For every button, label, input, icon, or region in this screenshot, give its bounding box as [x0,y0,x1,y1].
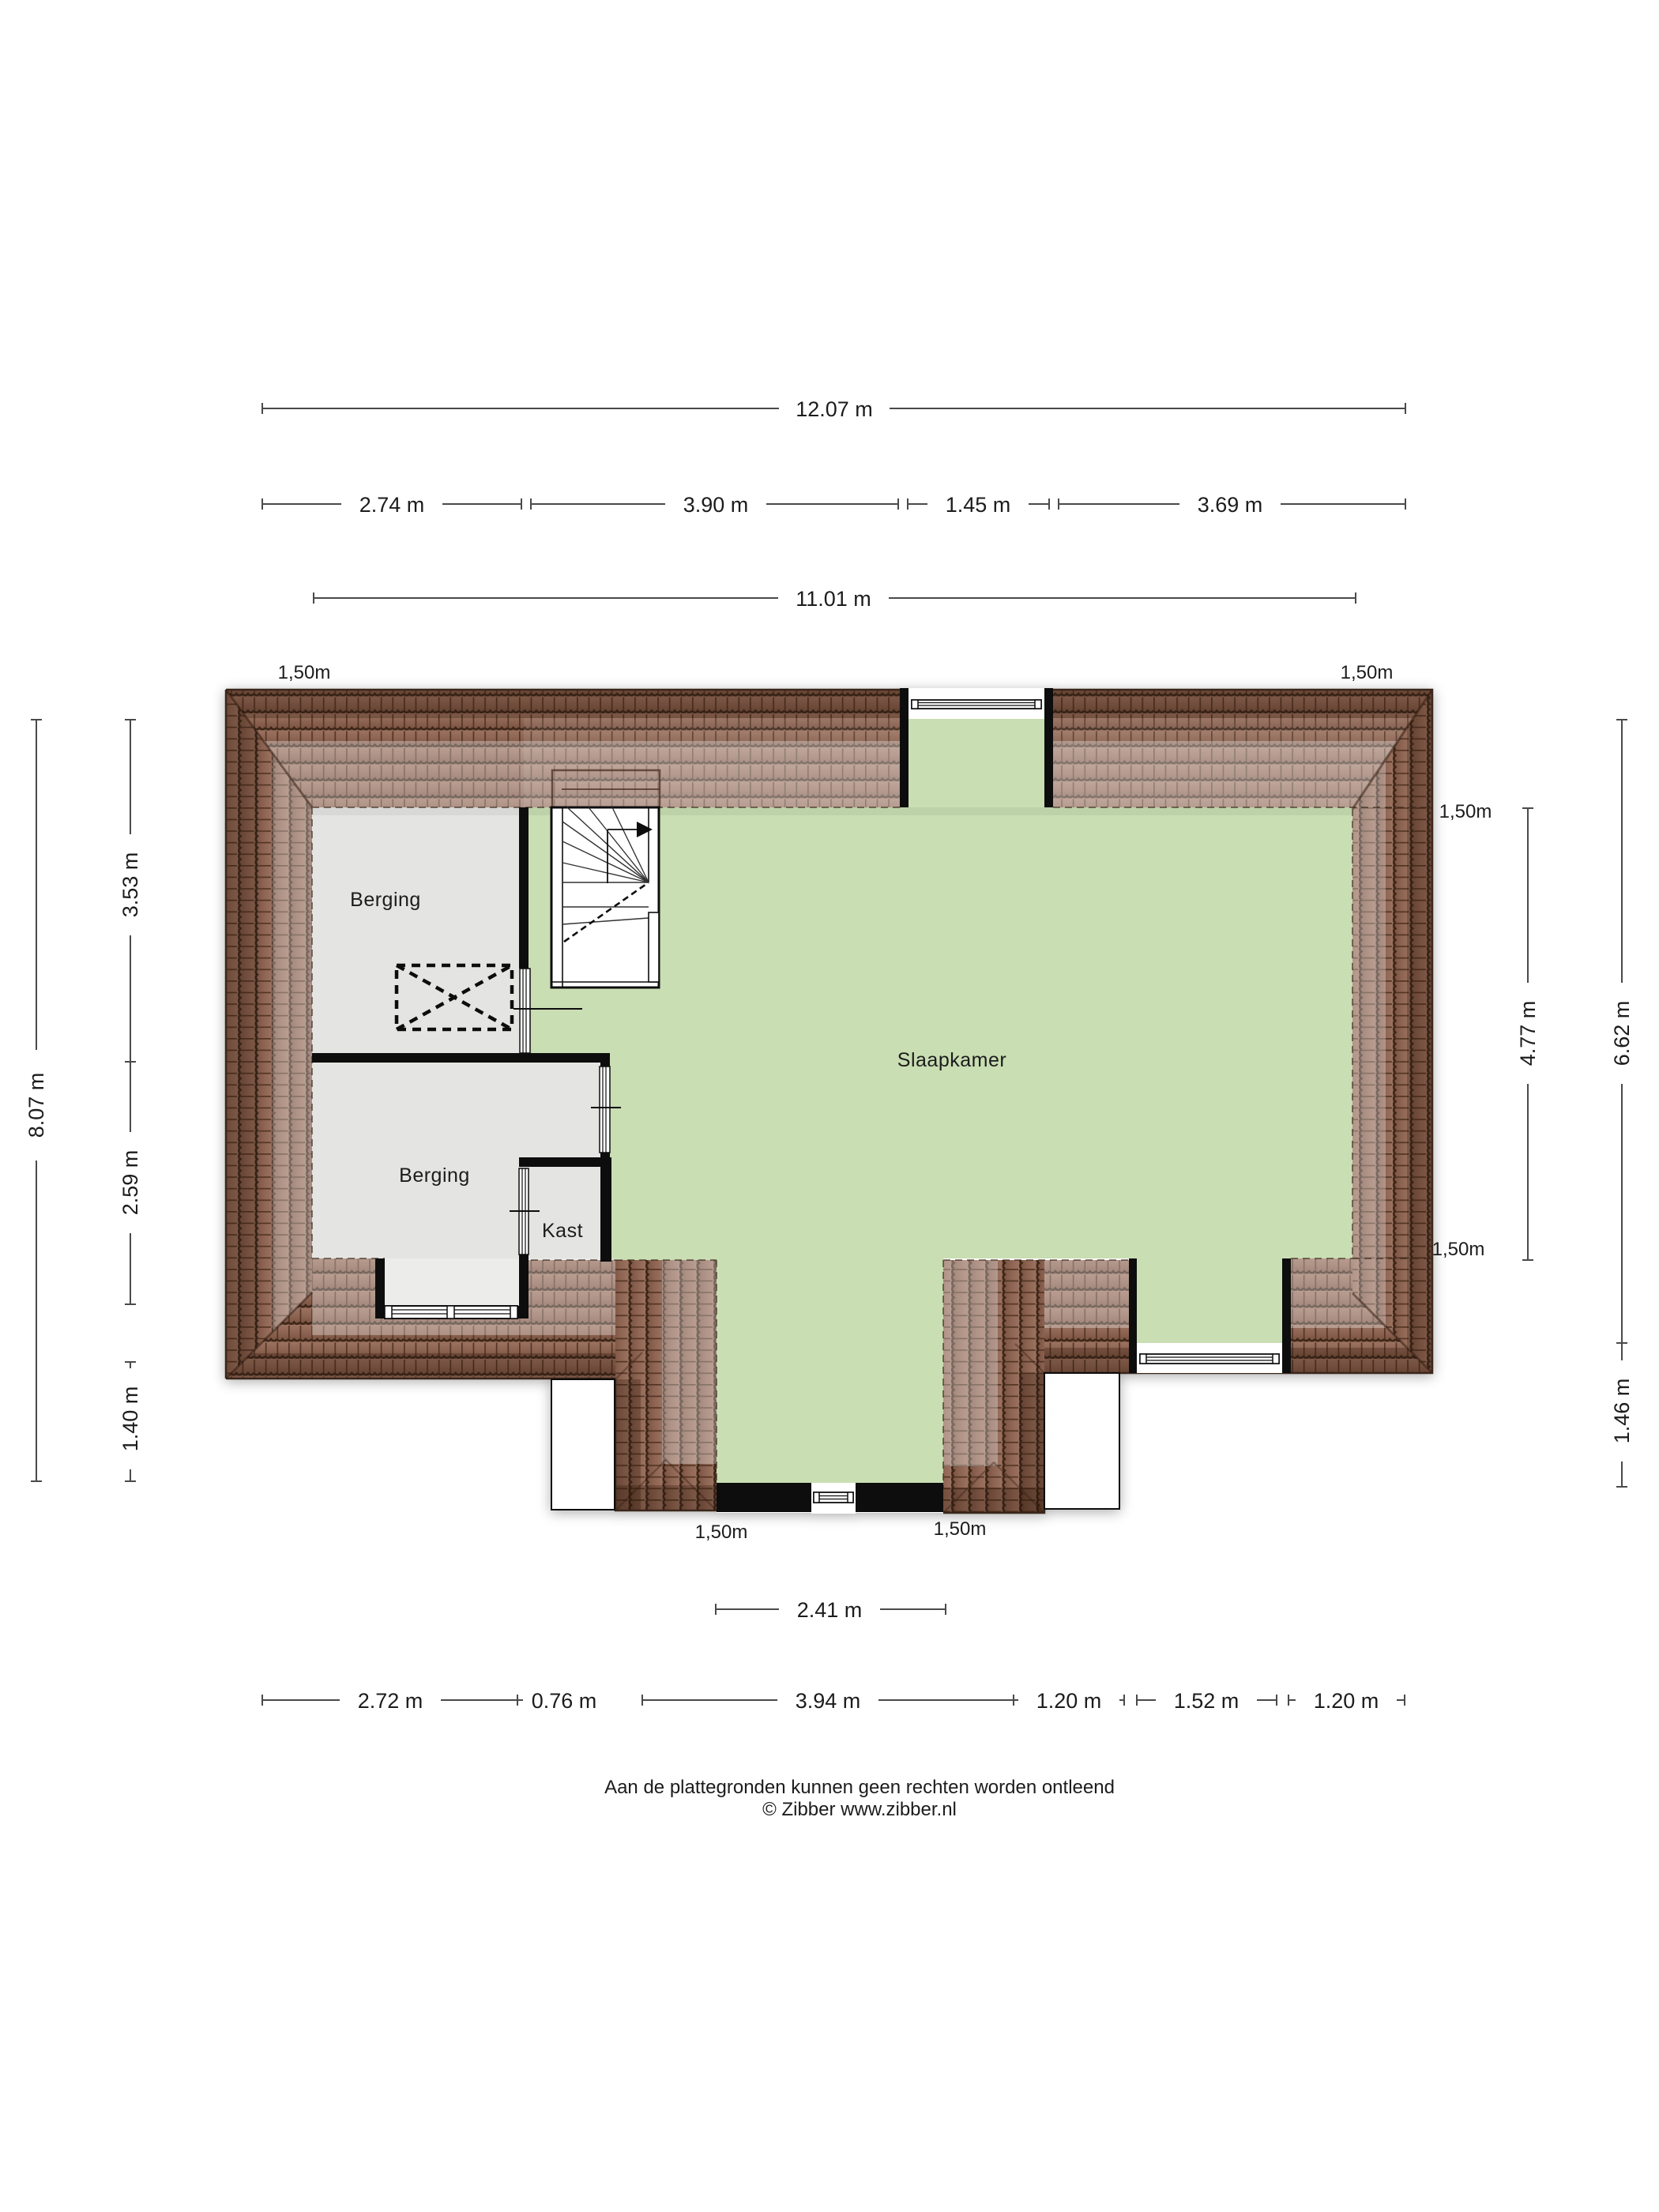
svg-text:11.01 m: 11.01 m [796,587,871,611]
svg-text:6.62 m: 6.62 m [1610,1001,1634,1066]
svg-text:0.76 m: 0.76 m [532,1689,597,1713]
svg-text:1.46 m: 1.46 m [1610,1379,1634,1444]
svg-text:1,50m: 1,50m [695,1522,748,1543]
svg-text:3.94 m: 3.94 m [796,1689,861,1713]
svg-text:2.41 m: 2.41 m [797,1598,863,1622]
svg-text:Slaapkamer: Slaapkamer [897,1049,1006,1071]
svg-text:1.52 m: 1.52 m [1174,1689,1240,1713]
svg-text:1.40 m: 1.40 m [118,1386,142,1452]
svg-text:3.90 m: 3.90 m [683,493,749,517]
svg-text:2.72 m: 2.72 m [358,1689,423,1713]
svg-text:Berging: Berging [350,889,421,911]
svg-text:2.74 m: 2.74 m [359,493,425,517]
svg-text:Berging: Berging [399,1164,470,1187]
svg-text:1,50m: 1,50m [1341,662,1394,683]
svg-text:Kast: Kast [542,1220,583,1242]
svg-text:1.20 m: 1.20 m [1314,1689,1379,1713]
svg-text:12.07 m: 12.07 m [796,397,873,421]
svg-text:1,50m: 1,50m [1439,801,1492,822]
svg-text:Aan de plattegronden kunnen ge: Aan de plattegronden kunnen geen rechten… [604,1777,1115,1798]
svg-text:1,50m: 1,50m [1432,1239,1485,1260]
svg-text:3.69 m: 3.69 m [1198,493,1263,517]
svg-text:1,50m: 1,50m [934,1518,987,1540]
svg-text:4.77 m: 4.77 m [1516,1001,1540,1066]
svg-text:8.07 m: 8.07 m [24,1073,48,1138]
svg-text:1.20 m: 1.20 m [1036,1689,1102,1713]
svg-text:© Zibber www.zibber.nl: © Zibber www.zibber.nl [762,1799,957,1820]
svg-text:3.53 m: 3.53 m [118,852,142,918]
svg-text:1,50m: 1,50m [278,662,331,683]
svg-text:2.59 m: 2.59 m [118,1150,142,1216]
svg-text:1.45 m: 1.45 m [946,493,1011,517]
